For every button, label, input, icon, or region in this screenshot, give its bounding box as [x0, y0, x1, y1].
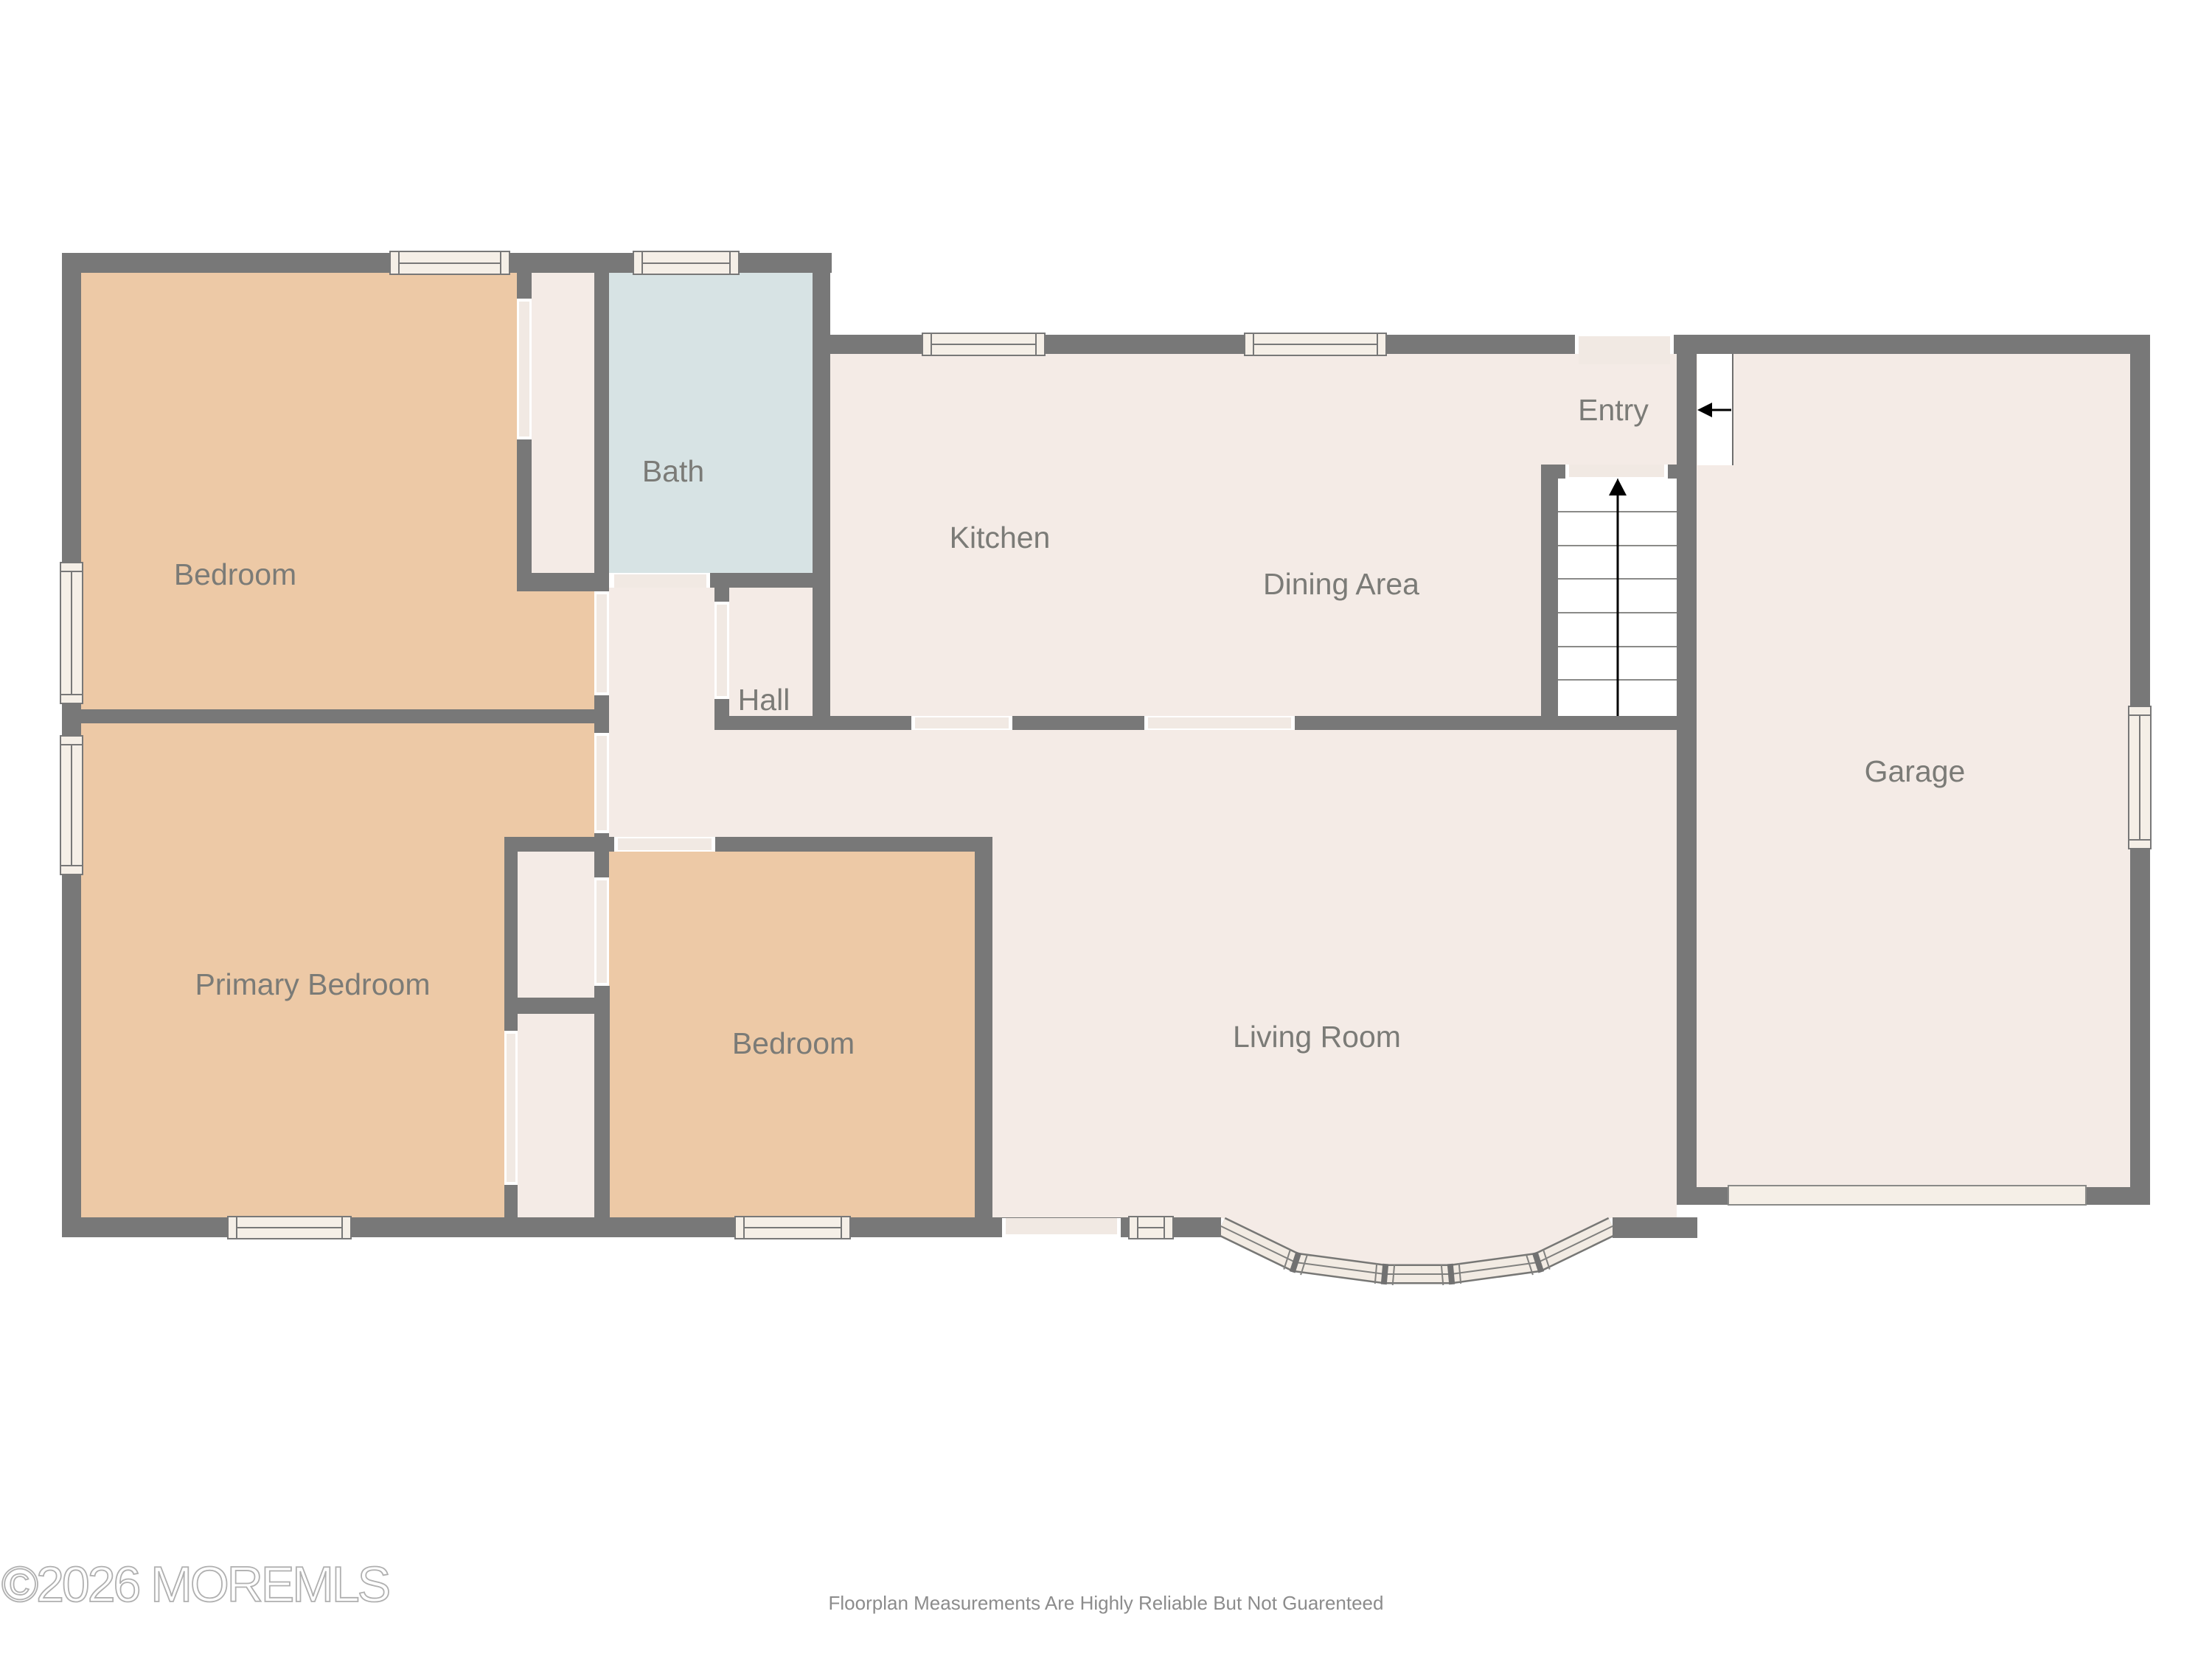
svg-text:Garage: Garage [1865, 754, 1966, 788]
svg-text:Bedroom: Bedroom [732, 1026, 855, 1060]
svg-text:Entry: Entry [1578, 393, 1649, 427]
svg-text:Primary Bedroom: Primary Bedroom [195, 967, 431, 1001]
svg-text:©2026 MOREMLS: ©2026 MOREMLS [1, 1557, 389, 1613]
svg-text:Floorplan Measurements Are Hig: Floorplan Measurements Are Highly Reliab… [829, 1592, 1384, 1614]
svg-text:Bath: Bath [642, 454, 704, 488]
svg-text:Kitchen: Kitchen [950, 521, 1051, 554]
svg-text:Bedroom: Bedroom [174, 557, 296, 591]
svg-text:Living Room: Living Room [1233, 1020, 1401, 1054]
svg-text:Dining Area: Dining Area [1263, 567, 1419, 601]
svg-text:Hall: Hall [738, 683, 790, 717]
